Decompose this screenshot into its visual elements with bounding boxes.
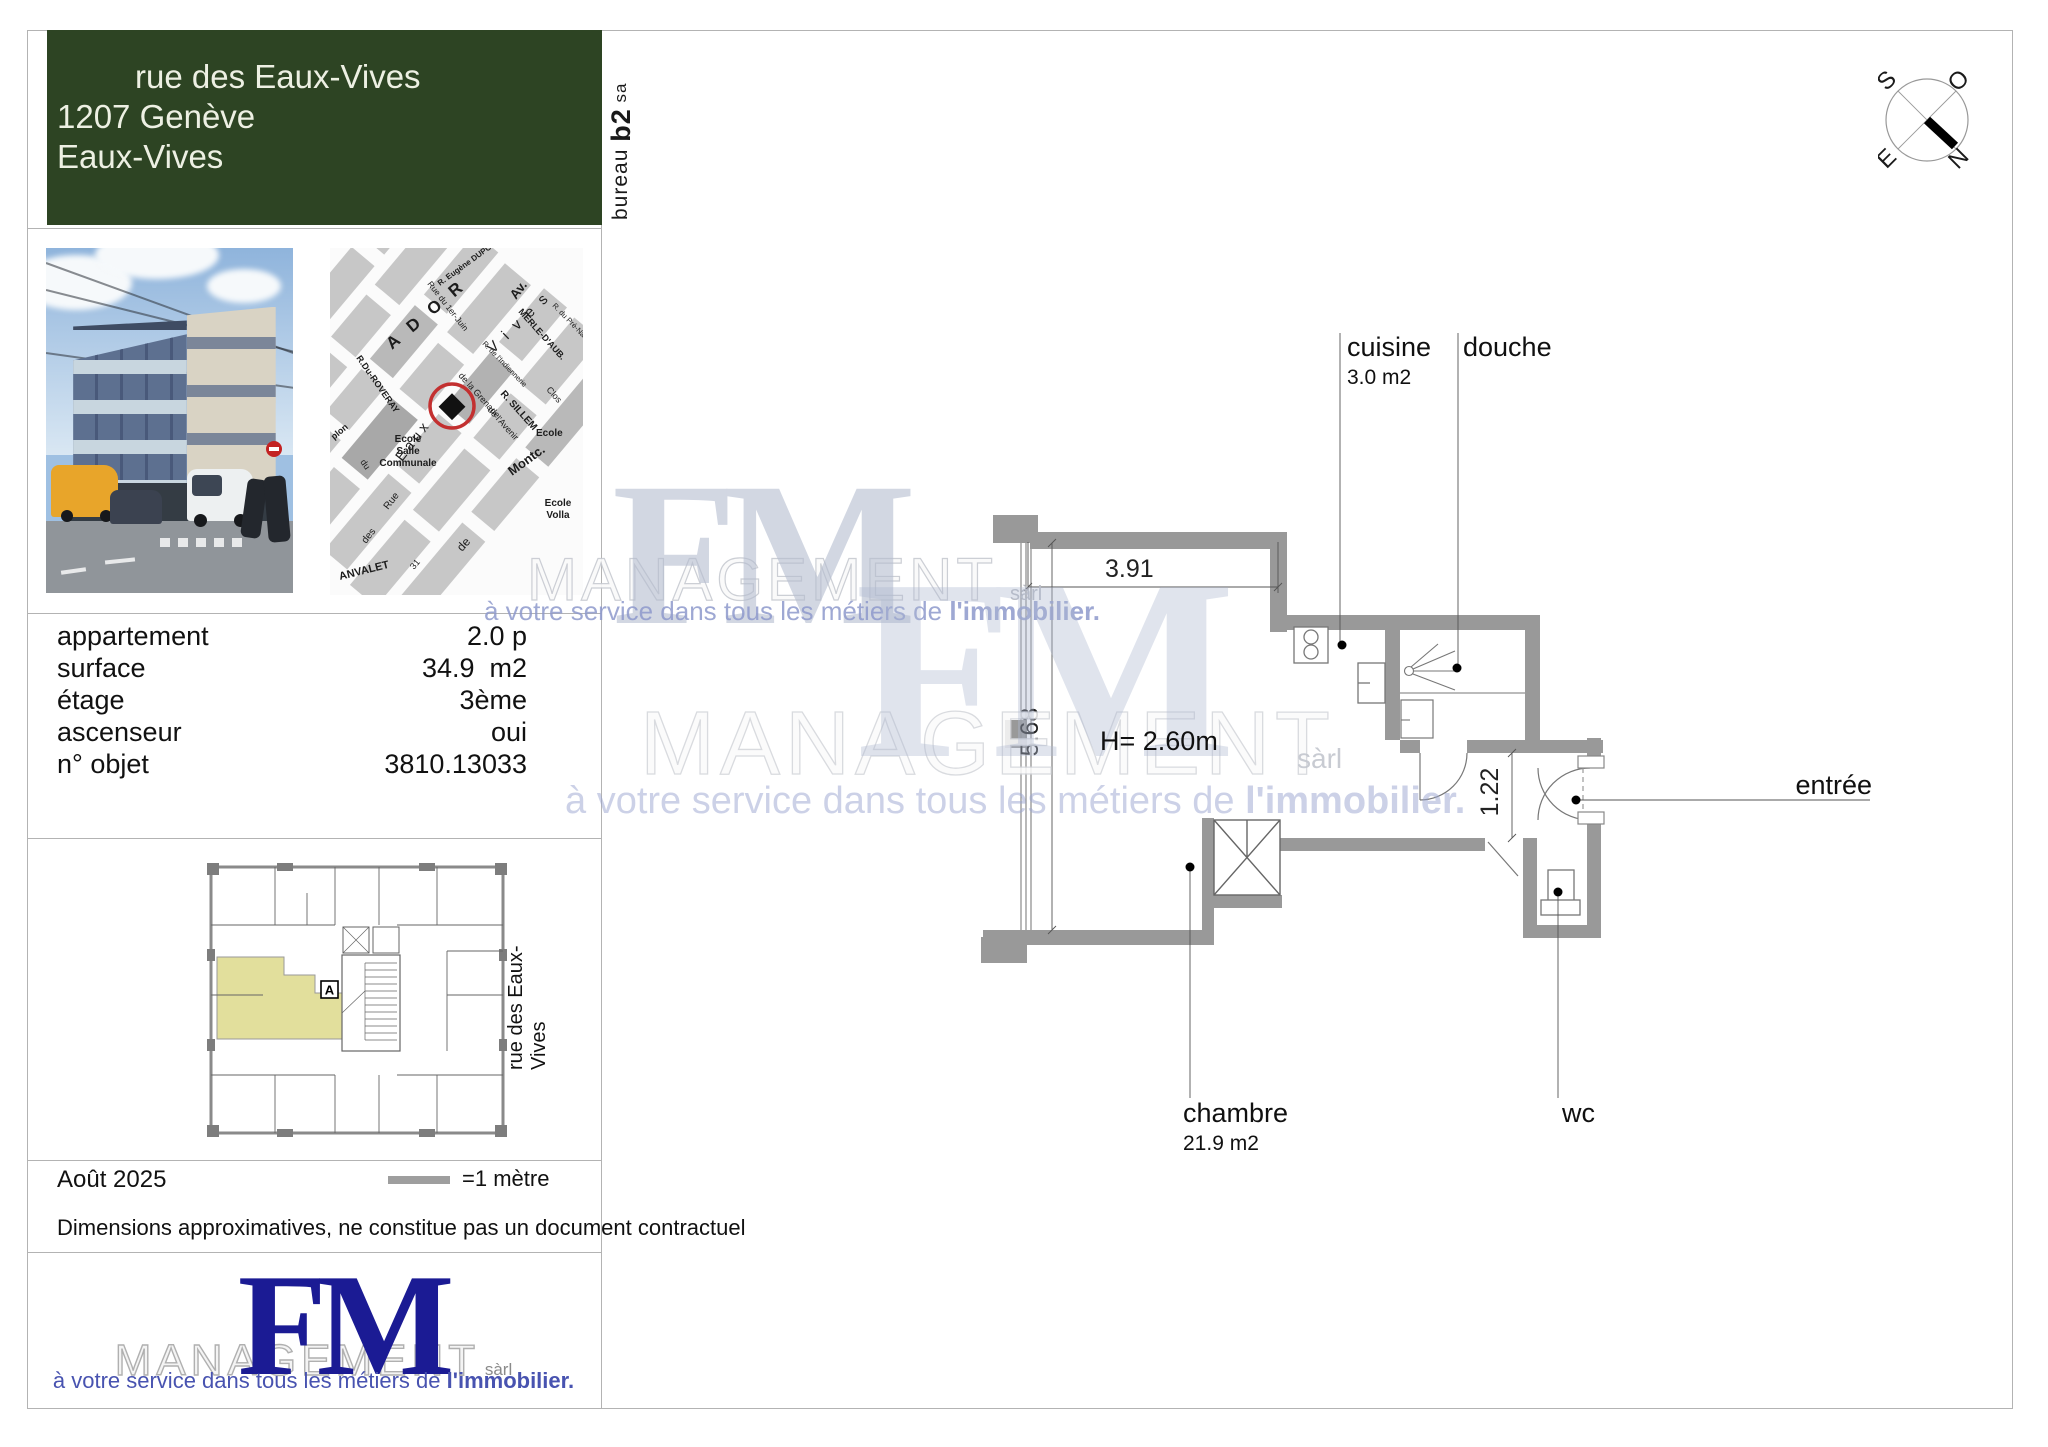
poi-ecole2: Ecole: [545, 498, 572, 509]
divider-overview-top: [27, 838, 602, 839]
room-area-cuisine: 3.0 m2: [1347, 366, 1411, 390]
row-value: 3ème: [459, 684, 527, 716]
sidebar-right-border: [601, 30, 602, 1409]
room-area-chambre: 21.9 m2: [1183, 1132, 1259, 1156]
location-map: A D O R Av. V i v e s R. Eugène DUPONT R…: [330, 248, 583, 595]
row-value: 34.9 m2: [422, 652, 527, 684]
divider-footer-top: [27, 1160, 602, 1161]
divider-photos-top: [27, 228, 602, 229]
room-label-chambre: chambre: [1183, 1098, 1288, 1129]
row-label: surface: [57, 652, 146, 684]
overview-unit-marker: A: [321, 981, 338, 998]
building-photo: [46, 248, 293, 593]
compass-needle: [1927, 120, 1955, 146]
table-row: surface34.9 m2: [57, 652, 527, 684]
address-header: rue des Eaux-Vives 1207 Genève Eaux-Vive…: [47, 30, 602, 225]
dim-hall: 1.22: [1476, 768, 1504, 817]
row-value: oui: [491, 716, 527, 748]
motorbike: [263, 475, 291, 542]
compass: S O E N: [1878, 58, 1990, 186]
address-street: rue des Eaux-Vives: [47, 57, 602, 97]
unit-letter: A: [325, 983, 335, 998]
row-label: étage: [57, 684, 125, 716]
no-entry-sign: [266, 441, 282, 457]
kitchen-counter: [1358, 663, 1385, 703]
wheel: [61, 510, 73, 522]
dimension-labels: 3.91 5.68 1.22: [1016, 555, 1504, 816]
room-label-wc: wc: [1562, 1098, 1595, 1129]
table-row: n° objet3810.13033: [57, 748, 527, 780]
date-label: Août 2025: [57, 1166, 166, 1194]
compass-o: O: [1943, 65, 1975, 97]
divider-details-top: [27, 613, 602, 614]
poi-ecole1: Ecole: [395, 434, 422, 445]
poi-volla: Volla: [546, 510, 570, 521]
tagline-normal: à votre service dans tous les métiers de: [53, 1368, 447, 1393]
address-district: Eaux-Vives: [47, 137, 602, 177]
bureau-bold: b2: [606, 108, 636, 142]
wheel: [194, 514, 207, 527]
row-value: 3810.13033: [384, 748, 527, 780]
elevator-shaft: [1214, 820, 1280, 895]
walls: [983, 532, 1603, 945]
room-label-douche: douche: [1463, 332, 1552, 363]
room-label-cuisine: cuisine: [1347, 332, 1431, 363]
compass-n: N: [1943, 143, 1974, 174]
bureau-label: bureau b2 sa: [606, 55, 637, 220]
row-label: appartement: [57, 620, 209, 652]
bureau-prefix: bureau: [609, 142, 632, 220]
ceiling-height-label: H= 2.60m: [1100, 726, 1218, 757]
scale-label: =1 mètre: [462, 1166, 549, 1192]
details-table: appartement2.0 p surface34.9 m2 étage3èm…: [57, 620, 527, 780]
logo-tagline: à votre service dans tous les métiers de…: [27, 1368, 600, 1394]
address-city: 1207 Genève: [47, 97, 602, 137]
overview-plan: A: [207, 863, 507, 1137]
table-row: ascenseuroui: [57, 716, 527, 748]
table-row: appartement2.0 p: [57, 620, 527, 652]
overview-street-label: rue des Eaux-Vives: [505, 930, 551, 1070]
poi-ecole3: Ecole: [536, 428, 563, 439]
tagline-bold: l'immobilier.: [447, 1368, 575, 1393]
room-label-entree: entrée: [1742, 770, 1872, 801]
scale-bar: [388, 1176, 450, 1184]
kitchen-stove: [1294, 627, 1328, 663]
row-label: n° objet: [57, 748, 149, 780]
row-label: ascenseur: [57, 716, 182, 748]
floor-plan-svg: 3.91 5.68 1.22: [950, 330, 1920, 1170]
crosswalk: [160, 538, 244, 547]
row-value: 2.0 p: [467, 620, 527, 652]
dim-depth: 5.68: [1016, 708, 1044, 757]
dim-width: 3.91: [1105, 555, 1154, 583]
disclaimer-text: Dimensions approximatives, ne constitue …: [57, 1215, 745, 1241]
property-sheet: rue des Eaux-Vives 1207 Genève Eaux-Vive…: [0, 0, 2048, 1447]
dark-car: [110, 490, 162, 525]
table-row: étage3ème: [57, 684, 527, 716]
poi-communale: Communale: [379, 458, 437, 469]
shower-symbol: [1400, 644, 1525, 738]
cloud: [207, 269, 281, 304]
poi-salle: Salle: [396, 446, 420, 457]
bureau-suffix: sa: [611, 83, 630, 109]
